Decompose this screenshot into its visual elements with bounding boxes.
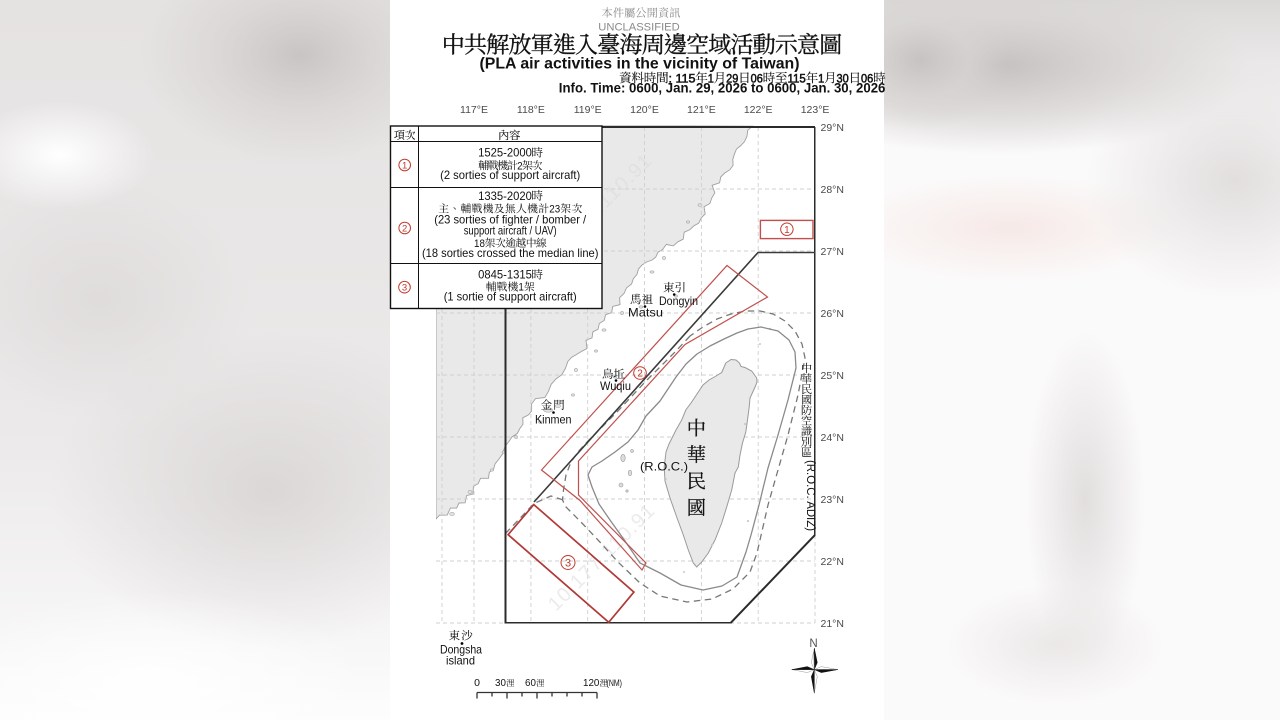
svg-text:118°E: 118°E xyxy=(517,104,545,116)
svg-text:island: island xyxy=(446,654,475,668)
svg-text:Dongyin: Dongyin xyxy=(659,294,698,308)
svg-text:3: 3 xyxy=(402,283,407,294)
svg-text:28°N: 28°N xyxy=(821,184,844,196)
svg-text:(1 sortie of support aircraft): (1 sortie of support aircraft) xyxy=(444,289,577,303)
svg-text:123°E: 123°E xyxy=(801,104,830,116)
svg-text:117°E: 117°E xyxy=(460,104,488,116)
svg-text:UNCLASSIFIED: UNCLASSIFIED xyxy=(598,22,679,34)
svg-text:(R.O.C. ADIZ): (R.O.C. ADIZ) xyxy=(804,460,816,531)
svg-text:Info. Time: 0600, Jan. 29, 202: Info. Time: 0600, Jan. 29, 2026 to 0600,… xyxy=(559,80,886,96)
svg-text:1: 1 xyxy=(402,160,407,171)
svg-text:24°N: 24°N xyxy=(821,432,844,444)
svg-text:30: 30 xyxy=(495,678,506,689)
svg-text:3: 3 xyxy=(565,558,571,570)
svg-text:60: 60 xyxy=(525,678,536,689)
svg-text:1525-2000: 1525-2000 xyxy=(478,147,532,160)
svg-text:(2 sorties of support aircraft: (2 sorties of support aircraft) xyxy=(440,168,580,182)
svg-text:26°N: 26°N xyxy=(821,308,844,320)
svg-text:2: 2 xyxy=(402,223,407,234)
svg-text:29°N: 29°N xyxy=(821,122,844,134)
svg-text:Kinmen: Kinmen xyxy=(535,413,572,427)
svg-text:27°N: 27°N xyxy=(821,246,844,258)
svg-text:121°E: 121°E xyxy=(687,104,716,116)
svg-text:N: N xyxy=(809,638,817,650)
svg-text:0: 0 xyxy=(474,677,480,689)
svg-text:120: 120 xyxy=(583,678,600,689)
svg-text:0845-1315: 0845-1315 xyxy=(478,269,532,282)
svg-text:25°N: 25°N xyxy=(821,370,844,382)
svg-text:(R.O.C.): (R.O.C.) xyxy=(640,460,688,474)
svg-text:2: 2 xyxy=(637,369,643,380)
svg-text:(PLA air activities in the vic: (PLA air activities in the vicinity of T… xyxy=(480,56,800,73)
svg-text:21°N: 21°N xyxy=(821,618,844,630)
svg-text:22°N: 22°N xyxy=(821,556,844,568)
svg-text:23°N: 23°N xyxy=(821,494,844,506)
svg-text:122°E: 122°E xyxy=(744,104,773,116)
svg-text:(18 sorties crossed the median: (18 sorties crossed the median line) xyxy=(422,246,599,260)
svg-text:support aircraft / UAV): support aircraft / UAV) xyxy=(464,223,557,237)
svg-text:1: 1 xyxy=(784,225,790,236)
svg-text:1335-2020: 1335-2020 xyxy=(478,190,532,203)
svg-text:(NM): (NM) xyxy=(607,678,623,689)
svg-text:120°E: 120°E xyxy=(630,104,659,116)
svg-text:119°E: 119°E xyxy=(574,104,602,116)
